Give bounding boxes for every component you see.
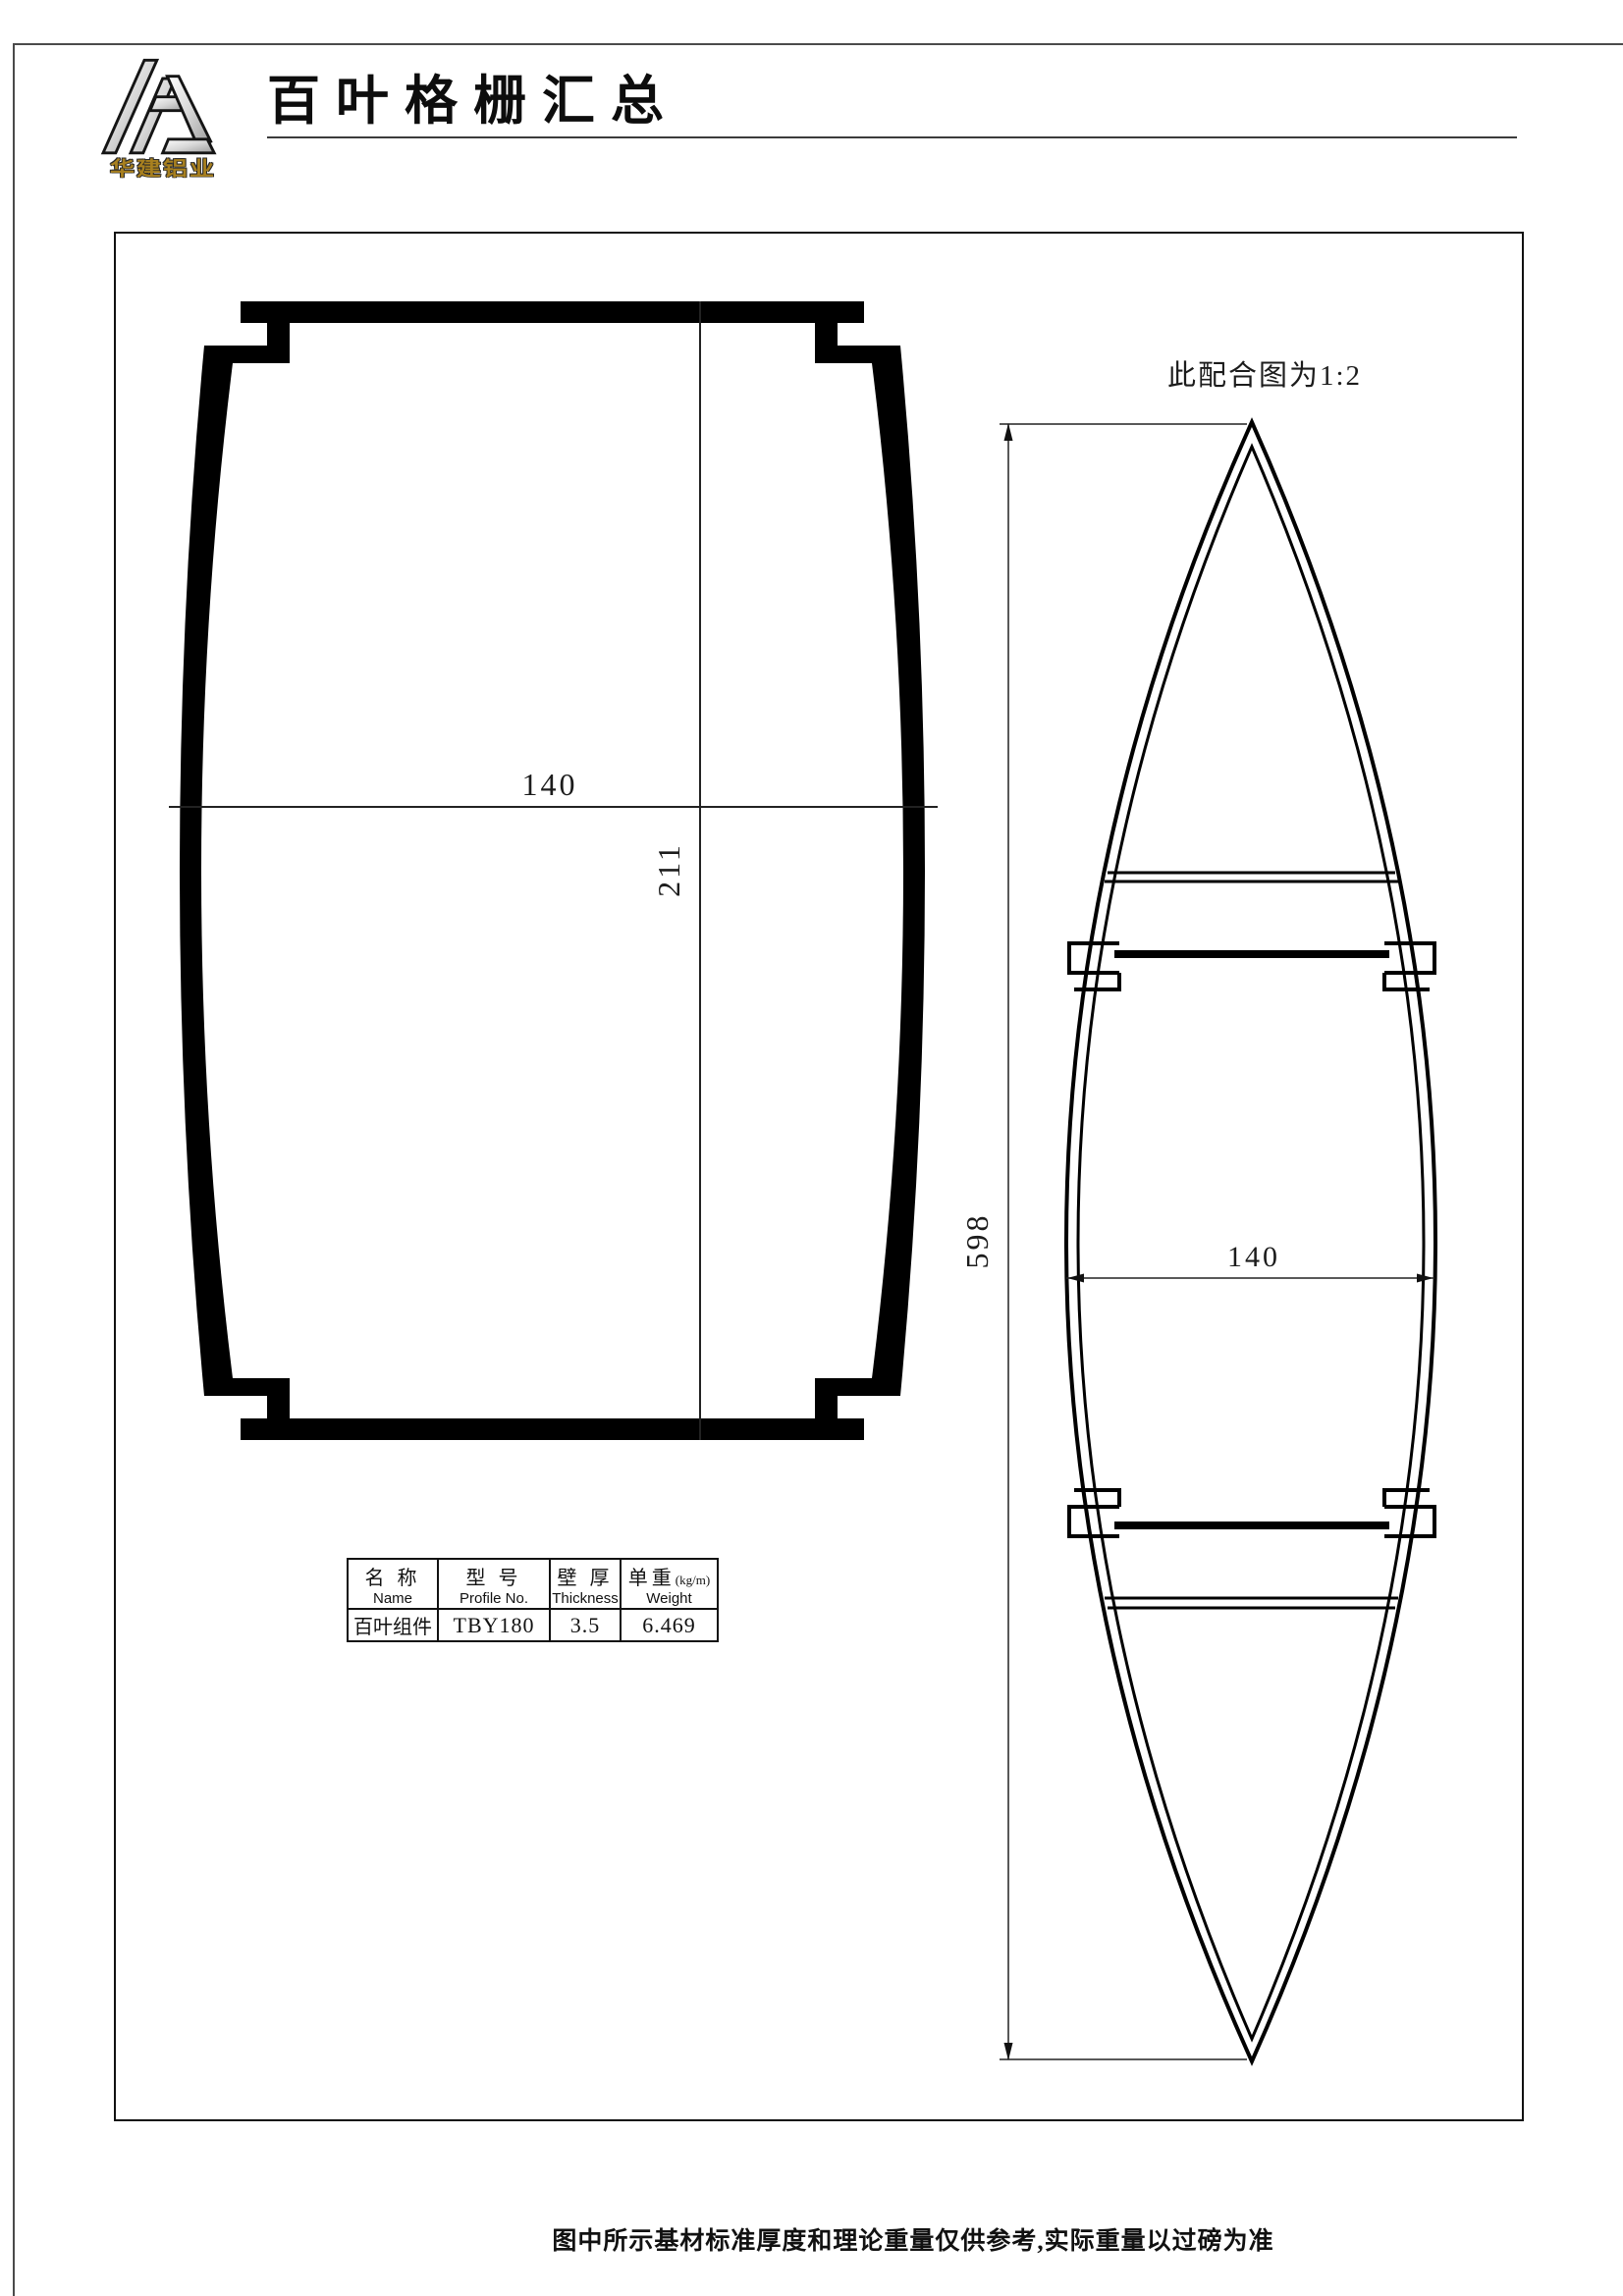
weight-unit: (kg/m) (676, 1573, 710, 1587)
col-header-thickness: 壁 厚 Thickness (550, 1559, 621, 1609)
cell-name: 百叶组件 (348, 1609, 438, 1641)
spec-table-data-row: 百叶组件 TBY180 3.5 6.469 (348, 1609, 718, 1641)
technical-drawing: 140 211 (114, 232, 1525, 2122)
company-name: 华建铝业 (110, 153, 238, 182)
col-header-profile-no: 型 号 Profile No. (438, 1559, 550, 1609)
col-header-name: 名 称 Name (348, 1559, 438, 1609)
cell-thickness: 3.5 (550, 1609, 621, 1641)
drawing-border (115, 233, 1523, 2120)
spec-table: 名 称 Name 型 号 Profile No. 壁 厚 Thickness 单… (347, 1558, 719, 1642)
arrow-left (1067, 1274, 1084, 1283)
dimension-arrows (1004, 423, 1434, 2060)
right-width-dim-label: 140 (1227, 1241, 1280, 1273)
left-height-dim-label: 211 (651, 842, 686, 897)
col-header-weight: 单重(kg/m) Weight (621, 1559, 718, 1609)
left-width-dim-label: 140 (522, 767, 578, 802)
page-title: 百叶格栅汇总 (267, 57, 679, 134)
upper-right-hook (1384, 943, 1434, 973)
arrow-up (1004, 423, 1013, 441)
arrow-right (1417, 1274, 1434, 1283)
footer-note: 图中所示基材标准厚度和理论重量仅供参考,实际重量以过磅为准 (511, 2221, 1316, 2257)
upper-left-hook (1069, 943, 1119, 973)
spec-table-header-row: 名 称 Name 型 号 Profile No. 壁 厚 Thickness 单… (348, 1559, 718, 1609)
lower-left-hook (1069, 1507, 1119, 1536)
left-profile-bottom-cap (241, 1378, 864, 1440)
scale-note: 此配合图为1:2 (1167, 359, 1362, 392)
cell-weight: 6.469 (621, 1609, 718, 1641)
arrow-down (1004, 2043, 1013, 2060)
logo-triangle-icon (96, 41, 234, 157)
cell-profile-no: TBY180 (438, 1609, 550, 1641)
left-profile-left-wall (180, 346, 290, 1396)
company-logo: 华建铝业 (96, 41, 243, 179)
left-profile-right-wall (815, 346, 925, 1396)
left-profile-section-view (180, 301, 925, 1440)
drawing-sheet: 华建铝业 百叶格栅汇总 140 211 (0, 0, 1623, 2296)
title-underline (267, 136, 1517, 138)
left-profile-top-cap (241, 301, 864, 363)
length-dim-label: 598 (959, 1213, 995, 1269)
left-margin-rule (13, 43, 15, 2296)
left-profile-dimensions (169, 301, 938, 1440)
lower-right-hook (1384, 1507, 1434, 1536)
top-margin-rule (13, 43, 1623, 45)
